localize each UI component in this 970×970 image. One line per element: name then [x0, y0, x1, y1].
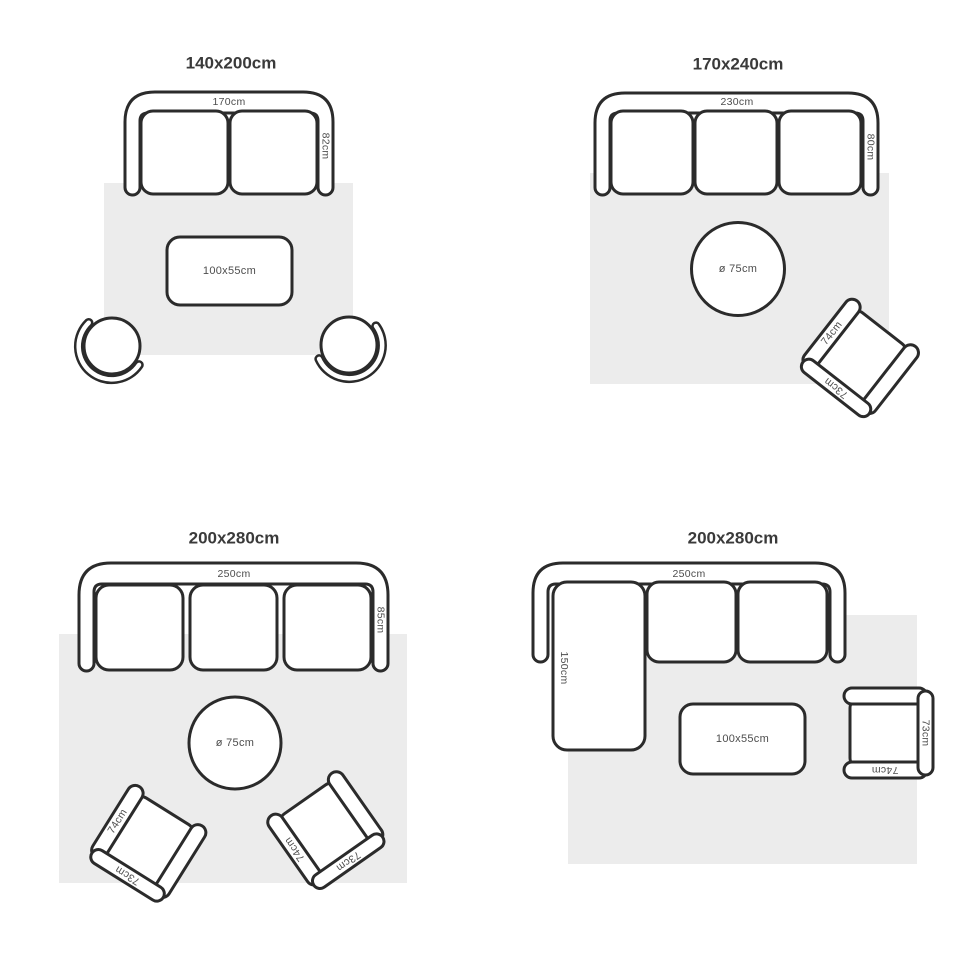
armchair: 74cm 73cm	[844, 688, 933, 778]
armchair-seat	[850, 698, 920, 768]
sofa-cushion	[738, 582, 827, 662]
swivel-chair-right	[319, 317, 382, 378]
rug-size-title: 170x240cm	[693, 55, 784, 74]
rug-size-title: 200x280cm	[688, 529, 779, 548]
sofa-cushion	[190, 585, 277, 670]
sofa-depth-label: 85cm	[375, 607, 387, 634]
armchair-arm-label: 74cm	[872, 764, 899, 776]
rug-size-title: 140x200cm	[186, 54, 277, 73]
round-table-size-label: ø 75cm	[216, 737, 254, 749]
armchair-arm-right	[844, 688, 927, 704]
panel-170x240: 170x240cm 230cm 80cm ø 75cm 74cm 73cm	[485, 0, 970, 485]
sofa-cushion	[141, 111, 228, 194]
swivel-chair-seat	[84, 318, 140, 374]
panel-200x280-sectional: 200x280cm 250cm 150cm 100x55cm 74cm 73cm	[485, 485, 970, 970]
sofa-cushion	[611, 111, 693, 194]
sofa-cushion	[695, 111, 777, 194]
sofa-width-label: 250cm	[672, 568, 705, 580]
sofa-depth-label: 82cm	[320, 133, 332, 160]
round-table-size-label: ø 75cm	[719, 263, 757, 275]
coffee-table-size-label: 100x55cm	[203, 265, 256, 277]
swivel-chair-left	[79, 318, 140, 379]
sofa-cushion	[647, 582, 736, 662]
sofa-width-label: 250cm	[217, 568, 250, 580]
panel-140x200: 140x200cm 170cm 82cm 100x55cm	[0, 0, 485, 485]
rug-size-guide: 140x200cm 170cm 82cm 100x55cm 170x240cm …	[0, 0, 970, 970]
chaise-length-label: 150cm	[558, 651, 570, 684]
sofa-cushion	[284, 585, 371, 670]
coffee-table-size-label: 100x55cm	[716, 733, 769, 745]
sofa-depth-label: 80cm	[865, 134, 877, 161]
sofa-width-label: 170cm	[212, 96, 245, 108]
sofa-cushion	[230, 111, 317, 194]
panel-200x280-sofa: 200x280cm 250cm 85cm ø 75cm 74cm 73cm 74…	[0, 485, 485, 970]
armchair-front-label: 73cm	[920, 720, 932, 747]
sofa-width-label: 230cm	[720, 96, 753, 108]
swivel-chair-seat	[321, 317, 377, 373]
sofa-cushion	[779, 111, 861, 194]
rug-size-title: 200x280cm	[189, 529, 280, 548]
sofa-cushion	[96, 585, 183, 670]
